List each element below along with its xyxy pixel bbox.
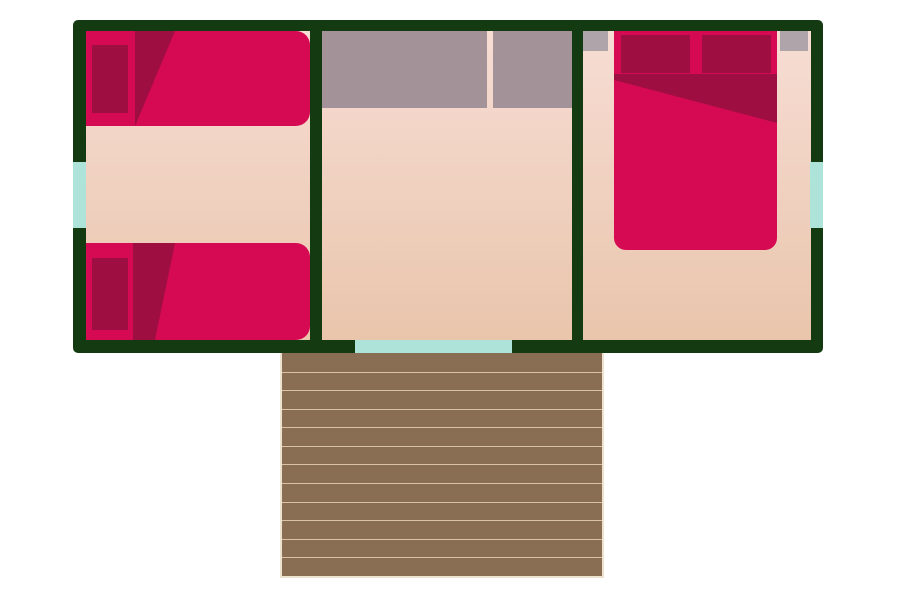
double-bed	[614, 31, 777, 250]
wall-segment	[572, 31, 583, 152]
window-left	[73, 162, 86, 228]
doorway-dash	[575, 192, 581, 202]
shelf-right	[780, 31, 808, 51]
door-jamb	[575, 233, 581, 240]
partition-wall-left	[310, 31, 322, 340]
wall-segment	[572, 240, 583, 340]
doorway-dash	[575, 170, 581, 180]
deck-plank	[282, 483, 602, 502]
door-jamb	[313, 152, 319, 159]
single-bed-bottom	[86, 243, 310, 340]
doorway-dash	[313, 214, 319, 224]
wall-segment	[310, 240, 322, 340]
pillow	[702, 35, 771, 73]
shelf-left	[583, 31, 608, 51]
doorway-dash	[313, 192, 319, 202]
pillow	[621, 35, 690, 73]
deck-plank	[282, 353, 602, 372]
deck-plank	[282, 502, 602, 521]
partition-wall-right	[572, 31, 583, 340]
deck-plank	[282, 427, 602, 446]
door-jamb	[313, 233, 319, 240]
single-bed-top	[86, 31, 310, 126]
doorway-dash	[313, 170, 319, 180]
pillow	[92, 258, 128, 330]
door-jamb	[575, 152, 581, 159]
front-door	[355, 340, 512, 353]
deck-plank	[282, 409, 602, 428]
doorway-dash	[575, 214, 581, 224]
cabin-outline	[73, 20, 823, 353]
deck-plank	[282, 464, 602, 483]
window-right	[810, 162, 823, 228]
deck-plank	[282, 539, 602, 558]
deck-plank	[282, 390, 602, 409]
deck-plank	[282, 372, 602, 391]
wooden-deck	[280, 353, 604, 578]
pillow	[92, 45, 128, 113]
deck-plank	[282, 446, 602, 465]
deck-plank	[282, 557, 602, 576]
wall-segment	[310, 31, 322, 152]
deck-plank	[282, 520, 602, 539]
counter-left-section	[322, 31, 487, 108]
counter-right-section	[493, 31, 572, 108]
